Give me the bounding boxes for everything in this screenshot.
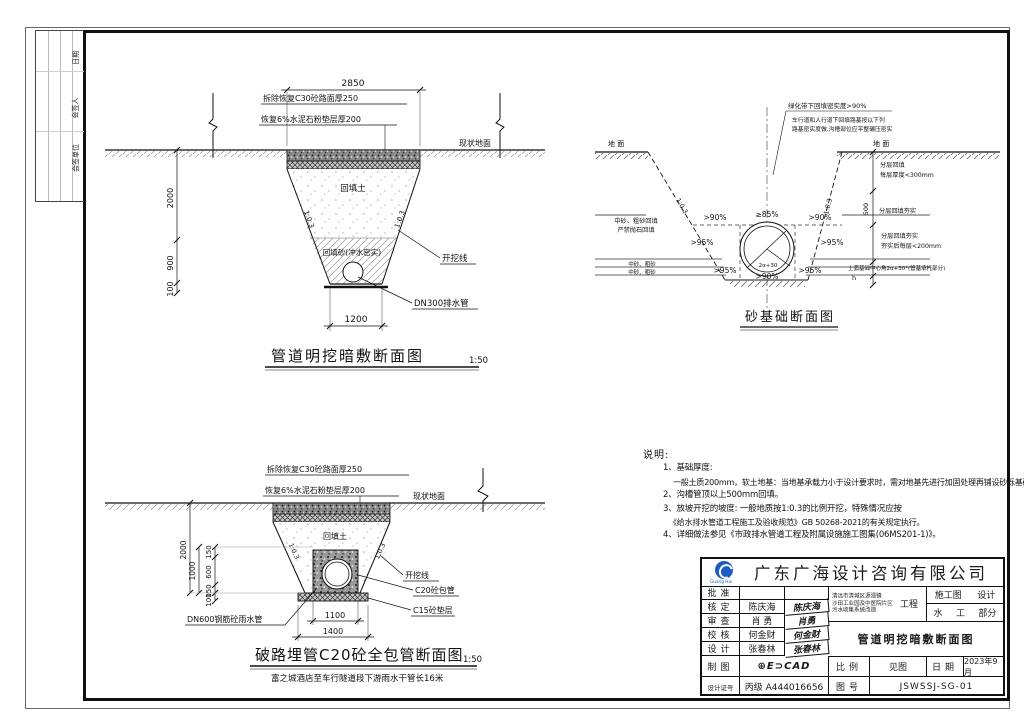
d3-bedding <box>298 593 368 601</box>
d1-pipe-circle <box>343 262 363 282</box>
note-line-3b: 《给水排水管道工程施工及验收规范》GB 50268-2021的有关规定执行。 <box>643 516 1015 529</box>
d2-right-label-3b: 夯实后每层<200mm <box>881 242 941 250</box>
cert-label: 设计证号 <box>702 677 740 696</box>
d2-right-label-h: h <box>852 274 856 282</box>
note-line-1: 1、基础厚度: <box>643 462 1015 475</box>
company-logo-text: Guang Hai <box>710 579 732 584</box>
stage-construction: 施工图 <box>935 588 962 601</box>
d3-dim-2000: 2000 <box>179 540 188 559</box>
d1-pipe-label: DN300排水管 <box>414 298 469 309</box>
project-name-cell: 清远市清城区源潭镇 沙田工业园及中医院片区 污水收集系统改造 工程 <box>829 586 927 622</box>
date-value: 2023年9月 <box>964 657 1003 677</box>
d1-dim-1200: 1200 <box>345 315 368 325</box>
d2-pct: >95% <box>691 238 714 247</box>
d1-dim-100: 100 <box>166 281 175 296</box>
d2-right-label-1a: 分层回填 <box>880 161 905 169</box>
countersign-table: 日期 会签人 会签单位 <box>35 30 84 202</box>
d3-dim-1400: 1400 <box>323 627 343 636</box>
countersign-person-label: 会签人 <box>71 98 81 119</box>
stage-design: 设计 <box>977 588 995 601</box>
d2-sand-fill-note-1: 中砂、粗砂回填 <box>614 217 657 225</box>
strip-line <box>36 131 84 132</box>
d3-dim-1100: 1100 <box>325 611 345 620</box>
part-work: 工 <box>956 606 965 619</box>
project-line-3: 污水收集系统改造 <box>832 607 893 614</box>
d2-sand-layer-label-2: 中砂、粗砂 <box>628 268 656 276</box>
d2-dim-500: 500 <box>862 203 870 215</box>
d2-right-label-4: 土弧基础中心角2α+30°(管基承托部分) <box>848 264 945 272</box>
d1-pavement-label-2: 恢复6%水泥石粉垫层厚200 <box>261 114 361 124</box>
d3-pavement-label-2: 恢复6%水泥石粉垫层厚200 <box>265 485 365 495</box>
approve-name <box>740 586 785 600</box>
strip-line <box>48 31 49 201</box>
approve-label: 批准 <box>702 586 740 600</box>
title-block: Guang Hai 广东广海设计咨询有限公司 批准 核定 陈庆海 陈庆海 审查 … <box>700 557 1005 696</box>
d3-subtitle: 富之城酒店至车行隧道段下游雨水干管长16米 <box>271 673 444 684</box>
d1-excavation-label: 开挖线 <box>442 253 468 264</box>
d1-dim-top: 2850 <box>281 79 426 146</box>
d1-ground-label: 现状地面 <box>459 138 491 148</box>
d2-ground-right-label: 地 面 <box>873 139 889 148</box>
title-block-header: Guang Hai 广东广海设计咨询有限公司 <box>702 559 1003 587</box>
d3-bottom-dims: 1100 1400 <box>292 600 374 641</box>
d2-pipe: 2α+30 <box>740 222 794 276</box>
notes-block: 说明: 1、基础厚度: 一般土质200mm，软土地基：当地基承载力小于设计要求时… <box>643 449 1015 543</box>
check-label: 校核 <box>702 628 740 642</box>
d2-title: 砂基础断面图 <box>740 310 838 330</box>
design-label: 设计 <box>702 642 740 656</box>
review-name: 肖 勇 <box>740 614 785 628</box>
d3-dim-100: 100 <box>205 593 213 606</box>
d3-title-scale: 1:50 <box>463 655 482 665</box>
d1-dim-900: 900 <box>166 255 175 270</box>
d2-right-label-2: 分层回填夯实 <box>879 207 916 215</box>
note-line-4: 4、详细做法参见《市政排水管道工程及附属设施施工图集(06MS201-1)》。 <box>643 529 1015 542</box>
note-line-3: 3、放坡开挖的坡度: 一般地质按1:0.3的比例开挖，特殊情况应按 <box>643 503 1015 516</box>
d2-title-text: 砂基础断面图 <box>745 310 835 325</box>
date-label: 日期 <box>927 657 964 677</box>
d2-pct: >90% <box>704 213 727 222</box>
part-water: 水 <box>934 606 943 619</box>
d1-title-scale: 1:50 <box>469 356 488 366</box>
countersign-unit-label: 会签单位 <box>71 144 81 172</box>
d1-pavement-labels: 拆除恢复C30砼路面厚250 恢复6%水泥石粉垫层厚200 现状地面 <box>259 93 491 150</box>
scale-label: 比例 <box>829 657 870 677</box>
d1-dim-2000: 2000 <box>166 188 175 208</box>
d1-dim-left: 2000 900 100 <box>166 147 180 297</box>
project-tag: 工程 <box>900 597 918 610</box>
d2-pct: >90% <box>756 272 779 281</box>
d3-pipe-label: DN600钢筋砼雨水管 <box>187 614 262 624</box>
d3-excavation-label: 开挖线 <box>405 570 429 580</box>
d1-title: 管道明挖暗敷断面图 1:50 <box>265 347 488 370</box>
d2-ground-left-label: 地 面 <box>608 139 624 148</box>
d2-right-dims: 500 分层回填 每层厚度<300mm 分层回填夯实 分层回填夯实 夯实后每层<… <box>848 149 945 288</box>
drawing-no-label: 图号 <box>829 677 870 696</box>
drawing-title-cell: 管道明挖暗敷断面图 <box>829 622 1003 657</box>
d2-sand-layer-label-1: 中砂、粗砂 <box>628 260 656 268</box>
review-label: 审查 <box>702 614 740 628</box>
d1-dim-bottom: 1200 <box>324 288 388 331</box>
d1-pavement-label-1: 拆除恢复C30砼路面厚250 <box>263 93 358 103</box>
part-section: 部分 <box>978 606 996 619</box>
d3-encase-label: C20砼包管 <box>415 585 455 595</box>
d3-trench: 回填土 1:0.3 1:0.3 <box>273 503 390 601</box>
d1-dim-2850: 2850 <box>342 79 365 89</box>
d3-dim-150a: 150 <box>205 545 213 558</box>
d3-title: 破路埋管C20砼全包管断面图 1:50 富之城酒店至车行隧道段下游雨水干管长16… <box>250 646 482 684</box>
d2-right-label-1b: 每层厚度<300mm <box>880 171 934 179</box>
d3-bedding-label: C15砼垫层 <box>413 605 453 615</box>
strip-line <box>36 71 84 72</box>
cert-number: 丙级 A444016656 <box>740 677 829 696</box>
d2-top-note: 绿化带下回填密实度>90% 车行道和人行道下回填路基按以下列 路基密实度做,沟槽… <box>773 101 893 175</box>
d2-note-road-2: 路基密实度做,沟槽部位应平整碾压密实 <box>792 125 893 133</box>
drawing-encased-pipe-section: 拆除恢复C30砼路面厚250 恢复6%水泥石粉垫层厚200 现状地面 回填土 1… <box>95 450 565 685</box>
countersign-date-label: 日期 <box>71 51 81 65</box>
d3-dim-1000: 1000 <box>188 561 197 580</box>
company-name: 广东广海设计咨询有限公司 <box>742 559 1000 585</box>
note-line-2: 2、沟槽管顶以上500mm回填。 <box>643 489 1015 502</box>
d2-note-road-1: 车行道和人行道下回填路基按以下列 <box>792 116 885 124</box>
d2-pct: >90% <box>809 213 832 222</box>
d2-sand-fill-note-2: 严禁抛石回填 <box>617 226 654 234</box>
d1-backfill-label: 回填土 <box>340 183 366 194</box>
drawing-sheet: 日期 会签人 会签单位 <box>0 0 1024 724</box>
draft-label: 制图 <box>702 656 740 677</box>
check-name: 何金财 <box>740 628 785 642</box>
d2-pct: >95% <box>821 238 844 247</box>
d2-slope-left: 1:0.3 <box>674 197 689 215</box>
drawing-sand-foundation-section: 地 面 地 面 绿化带下回填密实度>90% 车行道和人行道下回填路基按以下列 路… <box>580 95 1010 335</box>
d3-pavement-labels: 拆除恢复C30砼路面厚250 恢复6%水泥石粉垫层厚200 现状地面 <box>263 464 445 503</box>
company-logo-icon <box>715 561 733 579</box>
note-line-1b: 一般土质200mm，软土地基：当地基承载力小于设计要求时，需对地基先进行加固处理… <box>643 476 1015 489</box>
d3-title-text: 破路埋管C20砼全包管断面图 <box>255 646 464 664</box>
drawing-open-cut-section: 2850 拆除恢复C30砼路面厚250 恢复6%水泥石粉垫层厚200 现状地面 … <box>95 70 565 390</box>
d2-ground: 地 面 地 面 <box>595 139 1000 159</box>
part-cell: 水 工 部分 <box>927 604 1003 622</box>
d1-sand-label: 回填砂(冲水密实) <box>323 247 381 257</box>
drawing-no-value: JSWSSJ-SG-01 <box>870 677 1003 696</box>
d3-dim-600: 600 <box>205 565 213 578</box>
scale-value: 见图 <box>870 657 927 677</box>
d1-title-text: 管道明挖暗敷断面图 <box>271 347 424 365</box>
d3-ground-label: 现状地面 <box>413 491 445 501</box>
design-name: 张春林 <box>740 642 785 656</box>
d3-pipe-outer <box>322 559 352 589</box>
d2-note-green: 绿化带下回填密实度>90% <box>788 101 866 110</box>
strip-line <box>60 31 61 201</box>
d1-trench: 回填土 回填砂(冲水密实) 1:0.3 1:0.3 <box>287 150 420 287</box>
draft-cad-logo: ⊕E⊃CAD <box>740 656 829 677</box>
d3-backfill-label: 回填土 <box>323 531 347 541</box>
stage-cell: 施工图 设计 <box>927 586 1003 604</box>
d2-angle-label: 2α+30 <box>759 263 778 269</box>
verify-label: 核定 <box>702 600 740 614</box>
d2-pct: ≥85% <box>756 210 779 219</box>
verify-name: 陈庆海 <box>740 600 785 614</box>
notes-heading: 说明: <box>643 449 1015 462</box>
d2-right-label-3a: 分层回填夯实 <box>881 232 918 240</box>
d3-pavement-label-1: 拆除恢复C30砼路面厚250 <box>267 464 362 474</box>
